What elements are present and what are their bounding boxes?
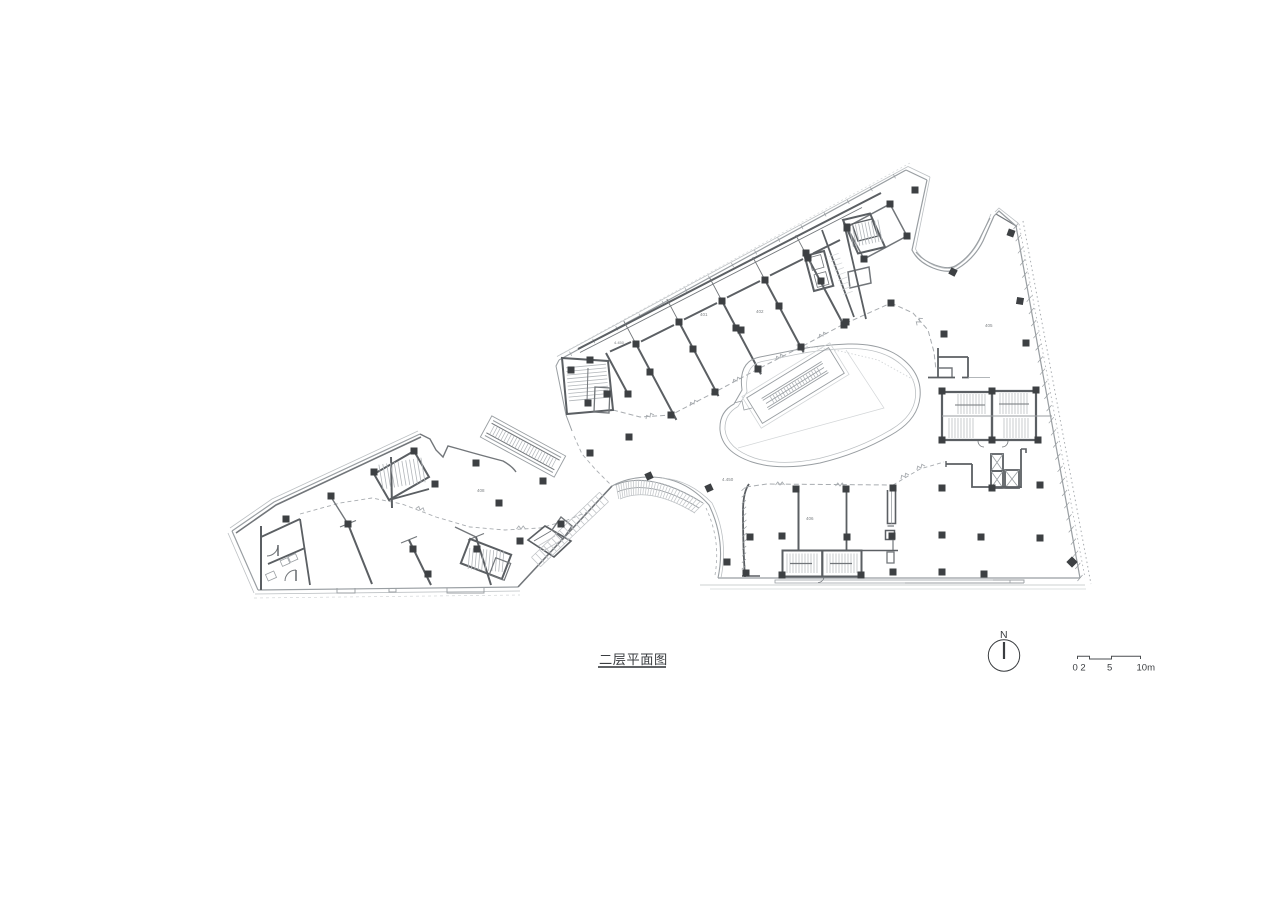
svg-text:10m: 10m <box>1137 663 1156 674</box>
svg-text:405: 405 <box>985 323 993 328</box>
svg-text:0 2: 0 2 <box>1073 663 1086 674</box>
svg-text:401: 401 <box>700 312 708 317</box>
svg-text:4.450: 4.450 <box>614 340 625 345</box>
svg-text:N: N <box>1000 629 1008 641</box>
svg-text:5: 5 <box>1107 663 1112 674</box>
svg-text:406: 406 <box>806 516 814 521</box>
svg-text:402: 402 <box>756 309 764 314</box>
svg-text:二层平面图: 二层平面图 <box>599 652 668 667</box>
svg-text:4.450: 4.450 <box>722 477 734 482</box>
svg-text:408: 408 <box>477 488 485 493</box>
